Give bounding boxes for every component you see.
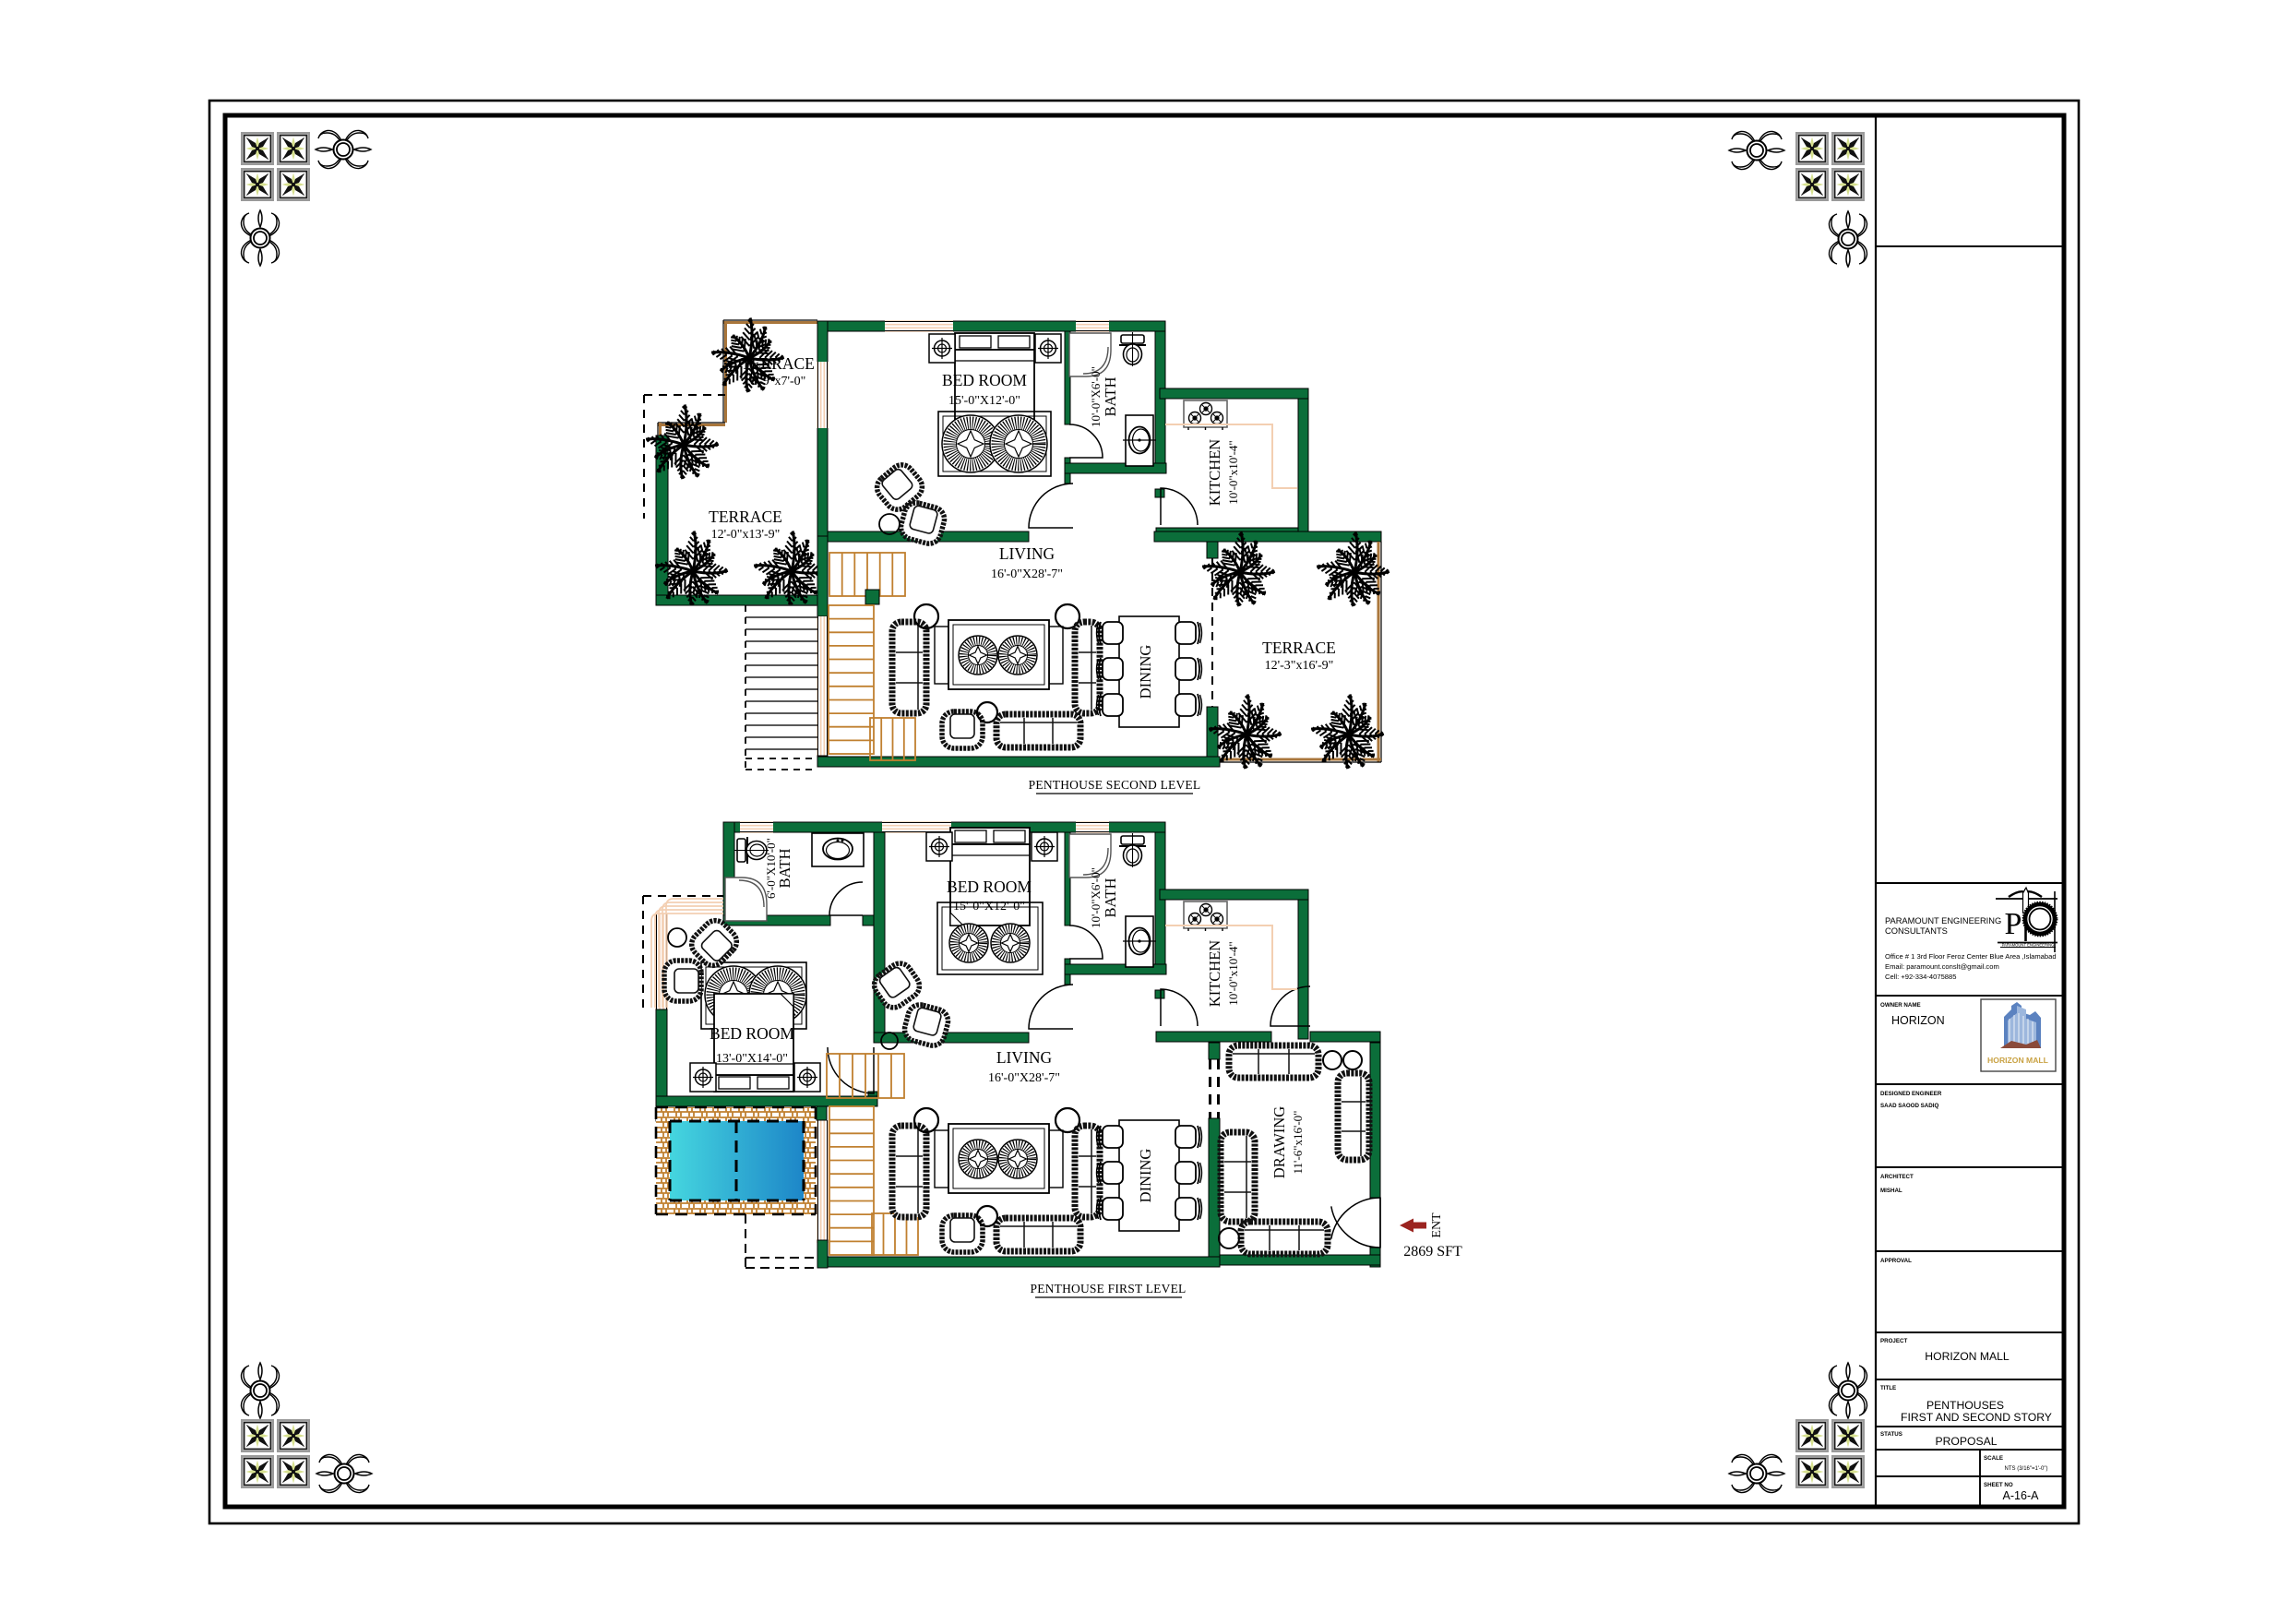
svg-text:LIVING: LIVING — [996, 1048, 1053, 1067]
svg-text:HORIZON MALL: HORIZON MALL — [1987, 1056, 2048, 1065]
svg-text:KITCHEN: KITCHEN — [1206, 439, 1223, 506]
svg-text:11'-6"x16'-0": 11'-6"x16'-0" — [1291, 1111, 1305, 1175]
svg-text:HORIZON: HORIZON — [1891, 1014, 1945, 1027]
svg-text:TERRACE: TERRACE — [709, 507, 782, 526]
svg-text:16'-0"X28'-7": 16'-0"X28'-7" — [988, 1071, 1060, 1085]
svg-text:ARCHITECT: ARCHITECT — [1880, 1174, 1914, 1180]
svg-text:12'-0"x13'-9": 12'-0"x13'-9" — [711, 528, 781, 542]
svg-text:PENTHOUSES: PENTHOUSES — [1926, 1399, 2004, 1412]
svg-text:SHEET NO: SHEET NO — [1984, 1482, 2013, 1488]
svg-text:DRAWING: DRAWING — [1270, 1106, 1288, 1178]
svg-text:APPROVAL: APPROVAL — [1880, 1258, 1912, 1264]
svg-text:SAAD SAOOD SADIQ: SAAD SAOOD SADIQ — [1880, 1103, 1938, 1109]
svg-text:NTS (3/16"=1'-0"): NTS (3/16"=1'-0") — [2005, 1466, 2048, 1472]
svg-text:10'-0"X6'-0": 10'-0"X6'-0" — [1089, 366, 1103, 427]
svg-text:SCALE: SCALE — [1984, 1455, 2003, 1462]
svg-text:BATH: BATH — [776, 848, 793, 888]
svg-text:PROJECT: PROJECT — [1880, 1338, 1907, 1344]
svg-text:PARAMOUNT ENGINEERING: PARAMOUNT ENGINEERING — [1885, 916, 2001, 925]
svg-text:DINING: DINING — [1137, 1149, 1154, 1203]
svg-text:Office # 1 3rd Floor Feroz Cen: Office # 1 3rd Floor Feroz Center Blue A… — [1885, 952, 2057, 961]
svg-text:BED ROOM: BED ROOM — [942, 371, 1027, 389]
svg-text:BED ROOM: BED ROOM — [710, 1024, 794, 1043]
svg-text:12'-3"x16'-9": 12'-3"x16'-9" — [1265, 659, 1334, 673]
svg-text:OWNER NAME: OWNER NAME — [1880, 1002, 1921, 1009]
svg-text:KITCHEN: KITCHEN — [1206, 940, 1223, 1007]
svg-text:TERRACE: TERRACE — [1262, 639, 1336, 657]
svg-text:FIRST AND SECOND STORY: FIRST AND SECOND STORY — [1901, 1411, 2052, 1424]
svg-text:BATH: BATH — [1102, 878, 1119, 917]
svg-text:10'-0"x10'-4": 10'-0"x10'-4" — [1226, 941, 1240, 1005]
svg-text:BED ROOM: BED ROOM — [947, 878, 1032, 896]
svg-text:2869 SFT: 2869 SFT — [1403, 1244, 1462, 1260]
svg-text:HORIZON MALL: HORIZON MALL — [1925, 1350, 2010, 1363]
svg-text:MISHAL: MISHAL — [1880, 1188, 1902, 1194]
svg-text:16'-0"X28'-7": 16'-0"X28'-7" — [991, 567, 1063, 581]
svg-text:Email: paramount.conslt@gmail.: Email: paramount.conslt@gmail.com — [1885, 962, 1999, 971]
svg-text:DINING: DINING — [1137, 645, 1154, 699]
svg-text:A-16-A: A-16-A — [2003, 1489, 2040, 1502]
svg-text:6'-0"X10'-0": 6'-0"X10'-0" — [764, 838, 778, 899]
svg-text:LIVING: LIVING — [999, 544, 1056, 563]
svg-text:15'-0"X12'-0": 15'-0"X12'-0" — [953, 900, 1025, 913]
svg-text:DESIGNED ENGINEER: DESIGNED ENGINEER — [1880, 1091, 1942, 1097]
svg-text:15'-0"X12'-0": 15'-0"X12'-0" — [948, 394, 1020, 408]
svg-text:P: P — [2005, 907, 2022, 941]
svg-text:BATH: BATH — [1102, 376, 1119, 416]
svg-text:ENT: ENT — [1430, 1212, 1444, 1238]
svg-text:PENTHOUSE FIRST LEVEL: PENTHOUSE FIRST LEVEL — [1031, 1282, 1187, 1296]
svg-text:13'-0"X14'-0": 13'-0"X14'-0" — [716, 1052, 788, 1066]
svg-text:PENTHOUSE SECOND LEVEL: PENTHOUSE SECOND LEVEL — [1029, 778, 1201, 792]
svg-text:PROPOSAL: PROPOSAL — [1935, 1435, 1997, 1448]
svg-text:STATUS: STATUS — [1880, 1431, 1902, 1438]
svg-text:PARAMOUNT ENGINEERING: PARAMOUNT ENGINEERING — [2002, 943, 2055, 948]
svg-text:CONSULTANTS: CONSULTANTS — [1885, 926, 1948, 936]
svg-text:10'-0"X6'-0": 10'-0"X6'-0" — [1089, 867, 1103, 928]
svg-text:TITLE: TITLE — [1880, 1385, 1896, 1391]
svg-text:10'-0"x10'-4": 10'-0"x10'-4" — [1226, 440, 1240, 504]
svg-text:Cell: +92-334-4075885: Cell: +92-334-4075885 — [1885, 973, 1956, 981]
